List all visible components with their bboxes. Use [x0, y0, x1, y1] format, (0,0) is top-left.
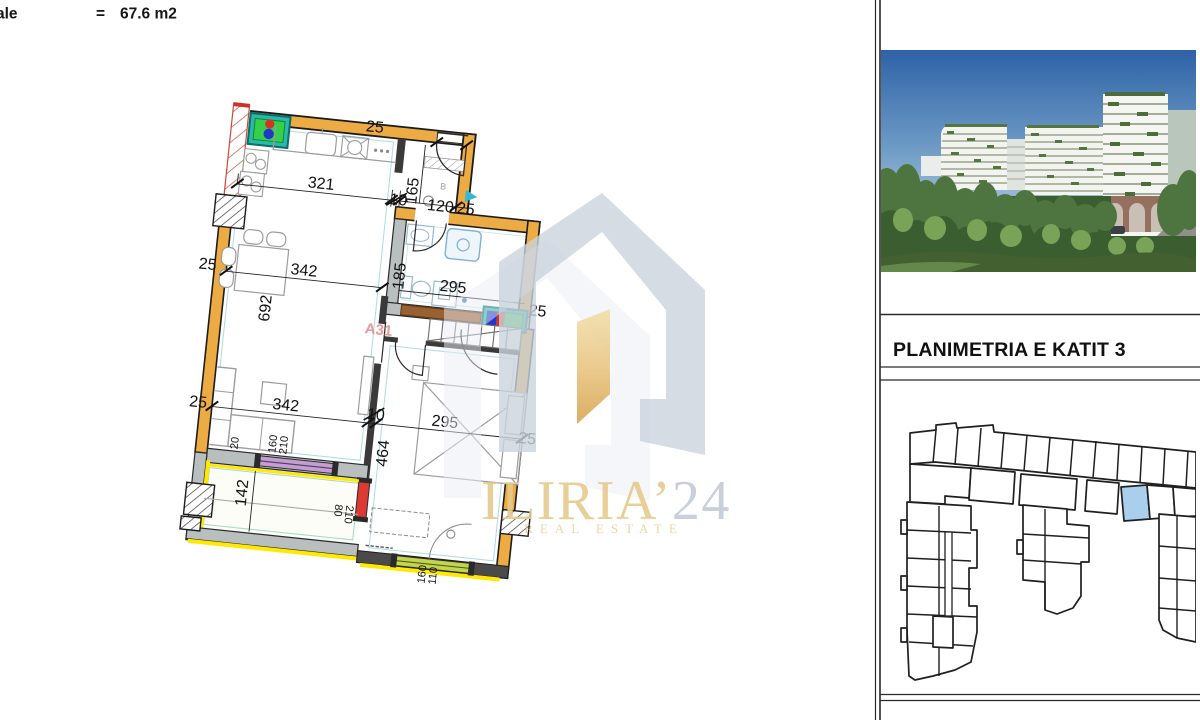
svg-text:295: 295: [439, 278, 467, 298]
svg-text:REAL ESTATE: REAL ESTATE: [524, 521, 684, 536]
svg-text:20: 20: [229, 436, 242, 449]
svg-text:321: 321: [307, 174, 335, 194]
svg-text:67.6 m2: 67.6 m2: [120, 6, 177, 23]
svg-text:=: =: [96, 6, 105, 23]
svg-text:ale: ale: [0, 6, 18, 23]
svg-text:342: 342: [290, 261, 318, 281]
svg-text:142: 142: [233, 479, 253, 507]
svg-text:110: 110: [427, 566, 441, 585]
svg-text:80: 80: [331, 504, 344, 517]
svg-text:342: 342: [272, 396, 300, 416]
svg-text:464: 464: [374, 439, 394, 467]
svg-text:185: 185: [390, 262, 410, 290]
svg-text:692: 692: [256, 294, 276, 322]
svg-text:25: 25: [188, 393, 208, 412]
svg-text:25: 25: [198, 255, 218, 274]
svg-text:25: 25: [365, 118, 385, 137]
svg-text:25: 25: [456, 200, 476, 219]
svg-text:120: 120: [426, 197, 454, 217]
svg-text:B: B: [440, 181, 447, 192]
svg-text:A31: A31: [364, 320, 393, 340]
svg-text:210: 210: [277, 435, 291, 455]
svg-text:PLANIMETRIA E KATIT 3: PLANIMETRIA E KATIT 3: [893, 339, 1126, 361]
